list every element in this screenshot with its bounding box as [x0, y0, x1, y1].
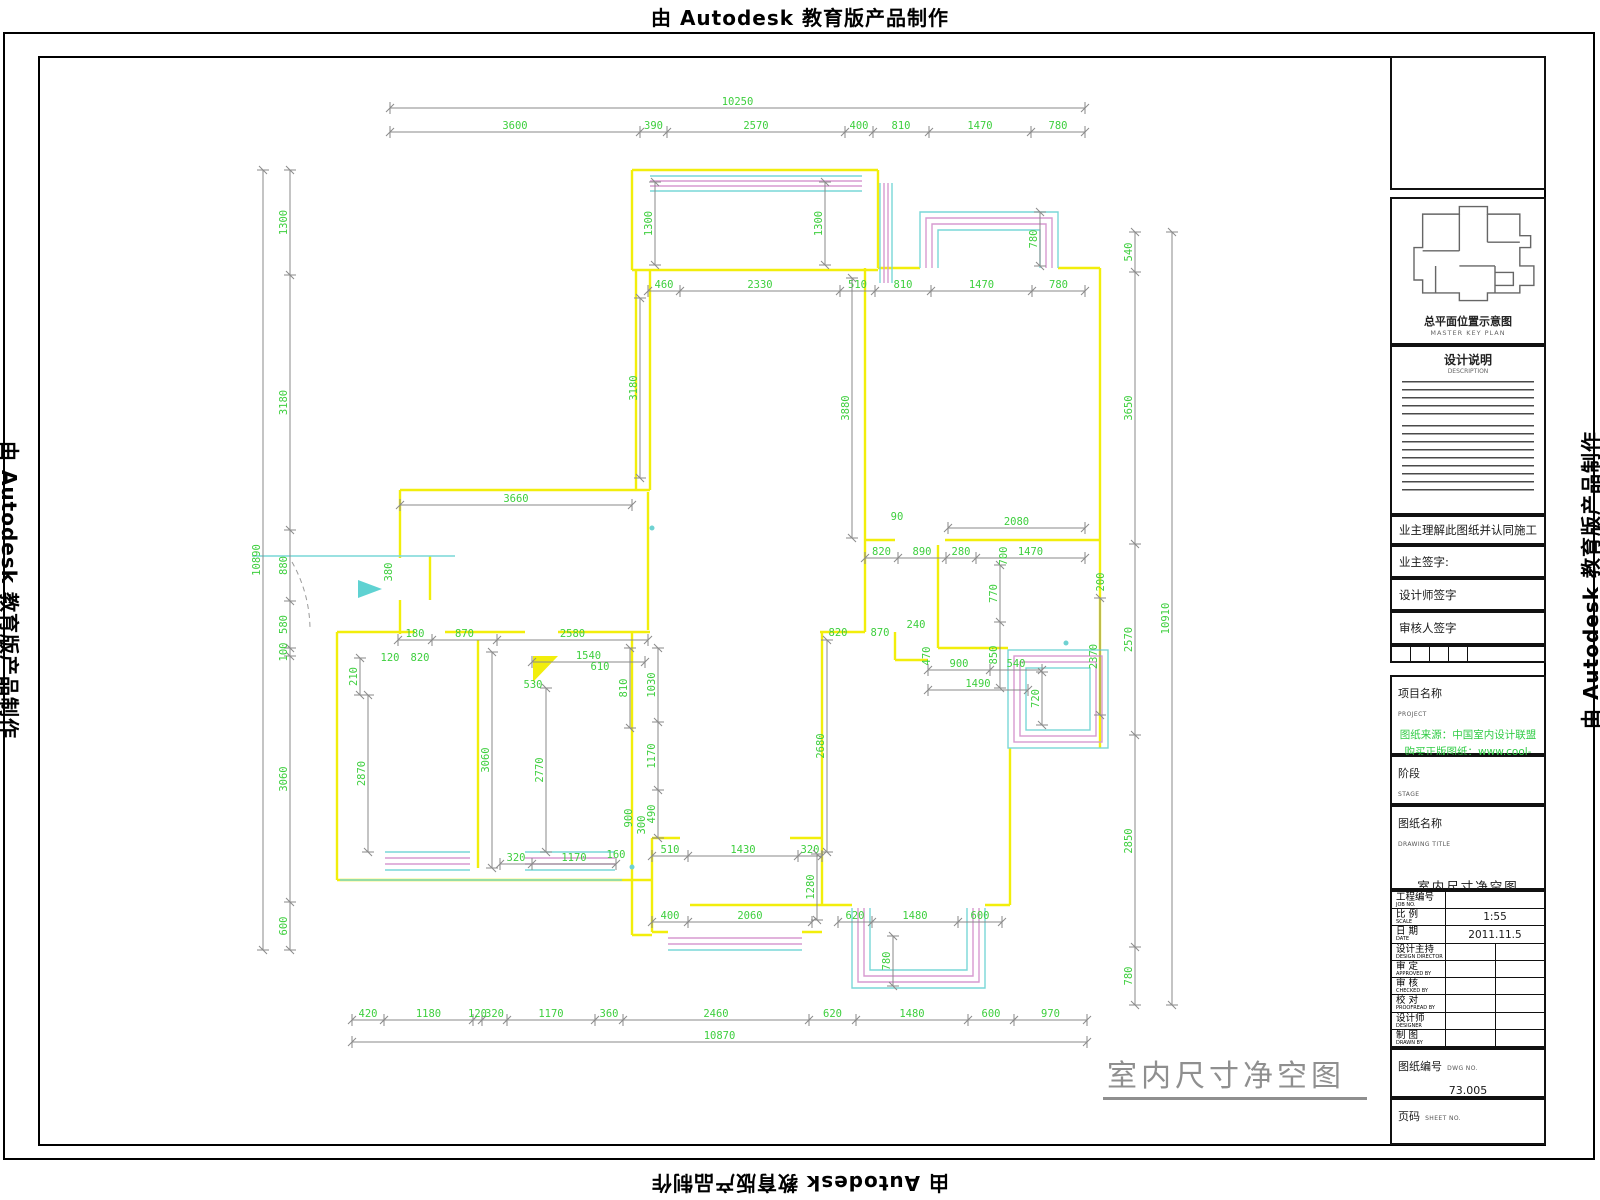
- plan-markers: [630, 526, 1069, 870]
- drawing-title-label: 图纸名称: [1398, 817, 1442, 830]
- reviewer-signature-row: 审核人签字: [1390, 611, 1546, 645]
- agreement-row: 业主理解此图纸并认同施工: [1390, 515, 1546, 545]
- revision-cell: [1449, 647, 1468, 661]
- titleblock-drawing-title-box: 图纸名称 DRAWING TITLE 室内尺寸净空图: [1390, 805, 1546, 890]
- table-row: 审 定APPROVED BY: [1392, 960, 1544, 977]
- row-value-2: [1495, 978, 1545, 994]
- dim-label: 580: [278, 615, 290, 634]
- dim-label: 10250: [722, 96, 754, 108]
- dim-label: 870: [871, 627, 890, 639]
- dim-label: 970: [1041, 1008, 1060, 1020]
- reviewer-signature-label: 审核人签字: [1399, 620, 1457, 636]
- dim-label: 460: [655, 279, 674, 291]
- owner-signature-label: 业主签字:: [1399, 554, 1449, 570]
- dim-label: 600: [971, 910, 990, 922]
- dim-label: 160: [607, 849, 626, 861]
- dim-label: 90: [891, 511, 904, 523]
- row-value: [1446, 892, 1544, 908]
- agreement-text: 业主理解此图纸并认同施工: [1399, 522, 1537, 538]
- stage-label-en: STAGE: [1398, 791, 1419, 798]
- dim-label: 1480: [902, 910, 927, 922]
- row-value-2: [1495, 961, 1545, 977]
- titleblock-notes-box: 设计说明 DESCRIPTION: [1390, 345, 1546, 515]
- row-value: 1:55: [1446, 909, 1544, 925]
- table-row: 设计主持DESIGN DIRECTOR: [1392, 943, 1544, 960]
- dim-label: 2850: [1123, 828, 1135, 853]
- dim-label: 2570: [1123, 627, 1135, 652]
- dim-label: 850: [988, 646, 1000, 665]
- dim-label: 720: [1030, 689, 1042, 708]
- dim-label: 780: [1123, 967, 1135, 986]
- row-value: [1446, 944, 1495, 960]
- table-row: 工程编号JOB NO.: [1392, 892, 1544, 908]
- table-row: 比 例SCALE 1:55: [1392, 908, 1544, 925]
- dim-label: 890: [913, 546, 932, 558]
- dim-label: 3180: [278, 390, 290, 415]
- dim-label: 2570: [743, 120, 768, 132]
- titleblock-keyplan-box: 总平面位置示意图 MASTER KEY PLAN: [1390, 197, 1546, 345]
- row-value-2: [1495, 1013, 1545, 1029]
- notes-paragraph-placeholder: [1402, 425, 1534, 495]
- titleblock-stage-box: 阶段 STAGE: [1390, 755, 1546, 805]
- dim-label: 600: [982, 1008, 1001, 1020]
- dim-label: 2330: [747, 279, 772, 291]
- dim-label: 280: [952, 546, 971, 558]
- dim-label: 820: [829, 627, 848, 639]
- dim-label: 1490: [965, 678, 990, 690]
- dim-label: 1470: [1018, 546, 1043, 558]
- dim-label: 820: [872, 546, 891, 558]
- sheet-label: 页码: [1398, 1110, 1420, 1123]
- drawing-title-label-en: DRAWING TITLE: [1398, 841, 1451, 848]
- notes-title: 设计说明: [1392, 351, 1544, 368]
- dim-label: 2370: [1088, 644, 1100, 669]
- dim-label: 900: [950, 658, 969, 670]
- dim-label: 510: [661, 844, 680, 856]
- dim-label: 3880: [840, 395, 852, 420]
- dim-label: 780: [1049, 279, 1068, 291]
- dim-label: 530: [524, 679, 543, 691]
- dim-label: 880: [278, 556, 290, 575]
- sheet-label-en: SHEET NO.: [1425, 1115, 1461, 1122]
- titleblock-empty-box: [1390, 56, 1546, 190]
- dim-label: 100: [278, 643, 290, 662]
- row-value-2: [1495, 944, 1545, 960]
- dim-label: 1170: [538, 1008, 563, 1020]
- project-label-en: PROJECT: [1398, 711, 1427, 718]
- stage-label: 阶段: [1398, 767, 1420, 780]
- dim-label: 700: [998, 547, 1010, 566]
- dim-label: 200: [1095, 573, 1107, 592]
- dim-label: 360: [600, 1008, 619, 1020]
- dim-label: 470: [921, 647, 933, 666]
- drawing-caption: 室内尺寸净空图: [1103, 1051, 1367, 1100]
- keyplan-caption: 总平面位置示意图: [1392, 313, 1544, 329]
- titleblock-dwgno-box: 图纸编号 DWG NO. 73.005: [1390, 1048, 1546, 1098]
- notes-title-en: DESCRIPTION: [1392, 368, 1544, 375]
- row-value: [1446, 1013, 1495, 1029]
- dwgno-label: 图纸编号: [1398, 1060, 1442, 1073]
- table-row: 制 图DRAWN BY: [1392, 1029, 1544, 1046]
- dim-label: 320: [485, 1008, 504, 1020]
- titleblock-project-box: 项目名称 PROJECT 图纸来源：中国室内设计联盟 购买正版图纸：www.co…: [1390, 675, 1546, 755]
- dim-label: 10910: [1160, 603, 1172, 635]
- owner-signature-row: 业主签字:: [1390, 545, 1546, 578]
- dim-label: 3060: [480, 747, 492, 772]
- dim-label: 2460: [703, 1008, 728, 1020]
- key-plan-thumbnail: [1392, 199, 1544, 307]
- dim-label: 620: [846, 910, 865, 922]
- dim-label: 1170: [646, 743, 658, 768]
- revision-cells-row: [1390, 645, 1546, 663]
- floor-plan-canvas: 1025036003902570400810147078046023305108…: [0, 0, 1600, 1200]
- window-lines: [340, 176, 892, 950]
- dim-label: 1470: [967, 120, 992, 132]
- dim-label: 2870: [356, 761, 368, 786]
- bay-windows: [852, 212, 1108, 988]
- source-line-1: 图纸来源：中国室内设计联盟: [1392, 727, 1544, 744]
- titleblock-info-table: 工程编号JOB NO. 比 例SCALE 1:55 日 期DATE 2011.1…: [1390, 890, 1546, 1048]
- dwgno-label-en: DWG NO.: [1447, 1065, 1478, 1072]
- row-label-en: DRAWN BY: [1396, 1041, 1445, 1046]
- cad-sheet: 由 Autodesk 教育版产品制作 由 Autodesk 教育版产品制作 由 …: [0, 0, 1600, 1200]
- row-value-2: [1495, 1030, 1545, 1046]
- dim-label: 510: [848, 279, 867, 291]
- dim-label: 400: [661, 910, 680, 922]
- dim-label: 540: [1007, 658, 1026, 670]
- dim-label: 120: [381, 652, 400, 664]
- dim-label: 1180: [416, 1008, 441, 1020]
- dim-label: 780: [881, 952, 893, 971]
- dim-label: 3180: [628, 375, 640, 400]
- revision-cell: [1392, 647, 1411, 661]
- row-value-2: [1495, 995, 1545, 1011]
- dim-label: 870: [455, 628, 474, 640]
- row-value: [1446, 978, 1495, 994]
- dim-label: 210: [348, 667, 360, 686]
- dim-label: 820: [411, 652, 430, 664]
- row-value: [1446, 995, 1495, 1011]
- designer-signature-label: 设计师签字: [1399, 587, 1457, 603]
- dim-label: 1430: [730, 844, 755, 856]
- keyplan-caption-en: MASTER KEY PLAN: [1392, 329, 1544, 337]
- dim-label: 1300: [643, 211, 655, 236]
- dim-label: 3600: [502, 120, 527, 132]
- dim-label: 540: [1123, 243, 1135, 262]
- row-value: [1446, 961, 1495, 977]
- table-row: 设计师DESIGNER: [1392, 1012, 1544, 1029]
- titleblock-sheet-box: 页码 SHEET NO.: [1390, 1098, 1546, 1145]
- dim-label: 780: [1049, 120, 1068, 132]
- dim-label: 240: [907, 619, 926, 631]
- dim-label: 400: [850, 120, 869, 132]
- designer-signature-row: 设计师签字: [1390, 578, 1546, 611]
- revision-cell: [1411, 647, 1430, 661]
- dim-label: 610: [591, 661, 610, 673]
- dim-label: 390: [644, 120, 663, 132]
- dim-label: 770: [988, 584, 1000, 603]
- row-value: 2011.11.5: [1446, 926, 1544, 942]
- dim-label: 1170: [561, 852, 586, 864]
- dim-label: 810: [618, 679, 630, 698]
- entry-direction-arrow-icon: [358, 580, 382, 598]
- dim-label: 180: [406, 628, 425, 640]
- table-row: 校 对PROOFREAD BY: [1392, 994, 1544, 1011]
- dim-label: 380: [383, 563, 395, 582]
- revision-cell: [1430, 647, 1449, 661]
- dim-label: 1030: [646, 672, 658, 697]
- table-row: 审 核CHECKED BY: [1392, 977, 1544, 994]
- dim-label: 1280: [805, 874, 817, 899]
- dim-label: 2770: [534, 757, 546, 782]
- dim-label: 810: [892, 120, 911, 132]
- table-row: 日 期DATE 2011.11.5: [1392, 925, 1544, 942]
- project-label: 项目名称: [1398, 687, 1442, 700]
- row-value: [1446, 1030, 1495, 1046]
- dim-label: 900: [623, 809, 635, 828]
- notes-paragraph-placeholder: [1402, 381, 1534, 419]
- dim-label: 1480: [899, 1008, 924, 1020]
- dim-label: 300: [636, 816, 648, 835]
- dim-label: 2680: [815, 733, 827, 758]
- dim-label: 3660: [503, 493, 528, 505]
- dim-label: 2060: [737, 910, 762, 922]
- dwgno-value: 73.005: [1392, 1084, 1544, 1097]
- dim-label: 2080: [1004, 516, 1029, 528]
- dim-label: 10890: [251, 544, 263, 576]
- door-swing-arc: [292, 562, 310, 630]
- dim-label: 600: [278, 917, 290, 936]
- dim-label: 3650: [1123, 395, 1135, 420]
- dim-label: 780: [1028, 230, 1040, 249]
- dim-label: 320: [507, 852, 526, 864]
- dim-label: 2580: [560, 628, 585, 640]
- dim-label: 1470: [969, 279, 994, 291]
- dim-label: 10870: [704, 1030, 736, 1042]
- dim-label: 620: [823, 1008, 842, 1020]
- dim-label: 1300: [813, 211, 825, 236]
- dim-label: 420: [359, 1008, 378, 1020]
- dim-label: 3060: [278, 766, 290, 791]
- dim-label: 810: [894, 279, 913, 291]
- dim-label: 1300: [278, 210, 290, 235]
